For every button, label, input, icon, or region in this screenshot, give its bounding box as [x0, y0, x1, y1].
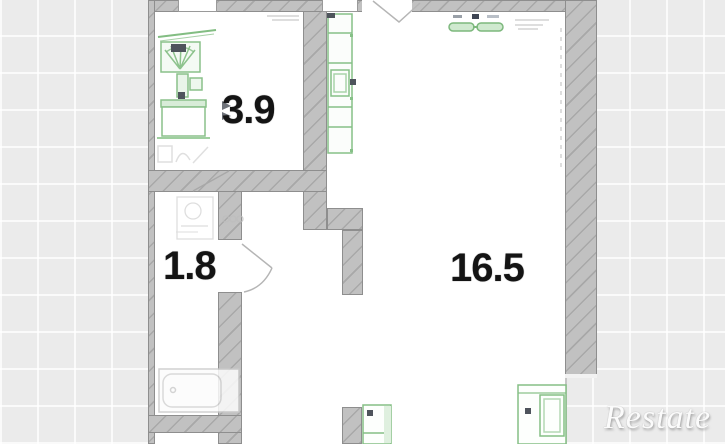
- wall-left: [148, 0, 155, 444]
- niche-above-kitchen: [322, 0, 358, 12]
- hallway-room: [154, 191, 218, 416]
- hallway-door-gap: [218, 240, 242, 292]
- wall-bathroom-right: [303, 11, 327, 230]
- wall-hallway-bottom: [148, 415, 242, 433]
- wall-bottom-stub: [342, 407, 362, 444]
- area-label-living-room: 16.5: [450, 248, 524, 288]
- wall-bathroom-bottom: [148, 170, 327, 192]
- room-below-cut: [154, 433, 218, 444]
- wall-jog-horizontal: [327, 208, 363, 230]
- wall-hallway-right-upper: [218, 191, 242, 240]
- watermark-restate: Restate: [604, 398, 725, 439]
- window-line-right: [565, 378, 567, 444]
- area-label-bathroom: 3.9: [222, 90, 275, 130]
- area-label-hallway: 1.8: [163, 246, 216, 286]
- niche-above-bathroom: [178, 0, 217, 12]
- wall-jog-vertical: [342, 230, 363, 295]
- wall-right-end-cap: [565, 374, 597, 378]
- wall-right: [565, 0, 597, 378]
- floorplan-scene: 3.9 1.8 16.5 Restate: [0, 0, 725, 444]
- entry-door-opening: [362, 0, 412, 12]
